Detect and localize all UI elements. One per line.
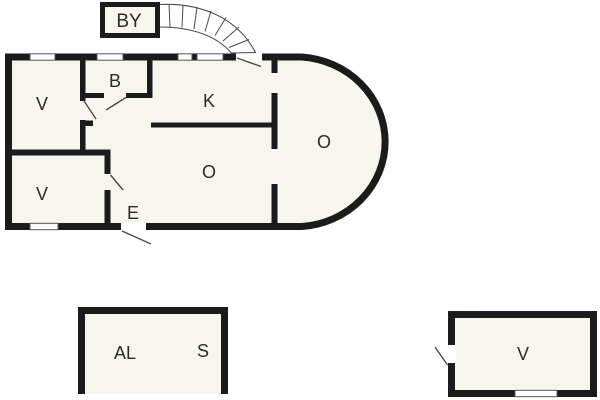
floor-plan-page: BY V B K O O E V AL S V <box>0 0 600 400</box>
interior-wall <box>272 184 278 227</box>
interior-wall <box>105 150 111 174</box>
window <box>197 54 223 60</box>
window <box>30 54 55 60</box>
room-label-lower-v: V <box>36 184 48 204</box>
interior-wall <box>5 150 111 156</box>
room-label-e: E <box>127 203 139 223</box>
main-entrance-opening <box>236 53 262 61</box>
door-swing <box>435 347 448 365</box>
window <box>97 54 123 60</box>
stairs-band <box>159 4 256 53</box>
interior-wall <box>151 123 278 128</box>
interior-wall <box>147 57 153 98</box>
interior-wall <box>82 93 104 98</box>
room-label-o-center: O <box>202 162 216 182</box>
window <box>30 223 58 229</box>
room-label-b: B <box>109 71 121 91</box>
window <box>515 390 557 396</box>
v-outbuilding-door-opening <box>447 345 456 363</box>
room-label-upper-v: V <box>36 94 48 114</box>
room-label-by: BY <box>116 11 142 32</box>
interior-wall <box>105 190 111 227</box>
room-label-outbuilding-v: V <box>517 344 529 364</box>
interior-wall <box>80 121 93 127</box>
door-swing <box>122 231 151 244</box>
v-outbuilding <box>435 315 594 397</box>
window <box>178 54 192 60</box>
room-label-s: S <box>197 341 209 361</box>
room-label-k: K <box>203 91 215 111</box>
floor-plan-drawing: BY V B K O O E V AL S V <box>0 0 600 400</box>
stairs <box>159 4 256 53</box>
interior-wall <box>272 93 278 149</box>
room-label-al: AL <box>114 343 136 363</box>
interior-wall <box>272 59 278 73</box>
e-entrance-opening <box>121 223 146 231</box>
room-label-o-right: O <box>317 132 331 152</box>
